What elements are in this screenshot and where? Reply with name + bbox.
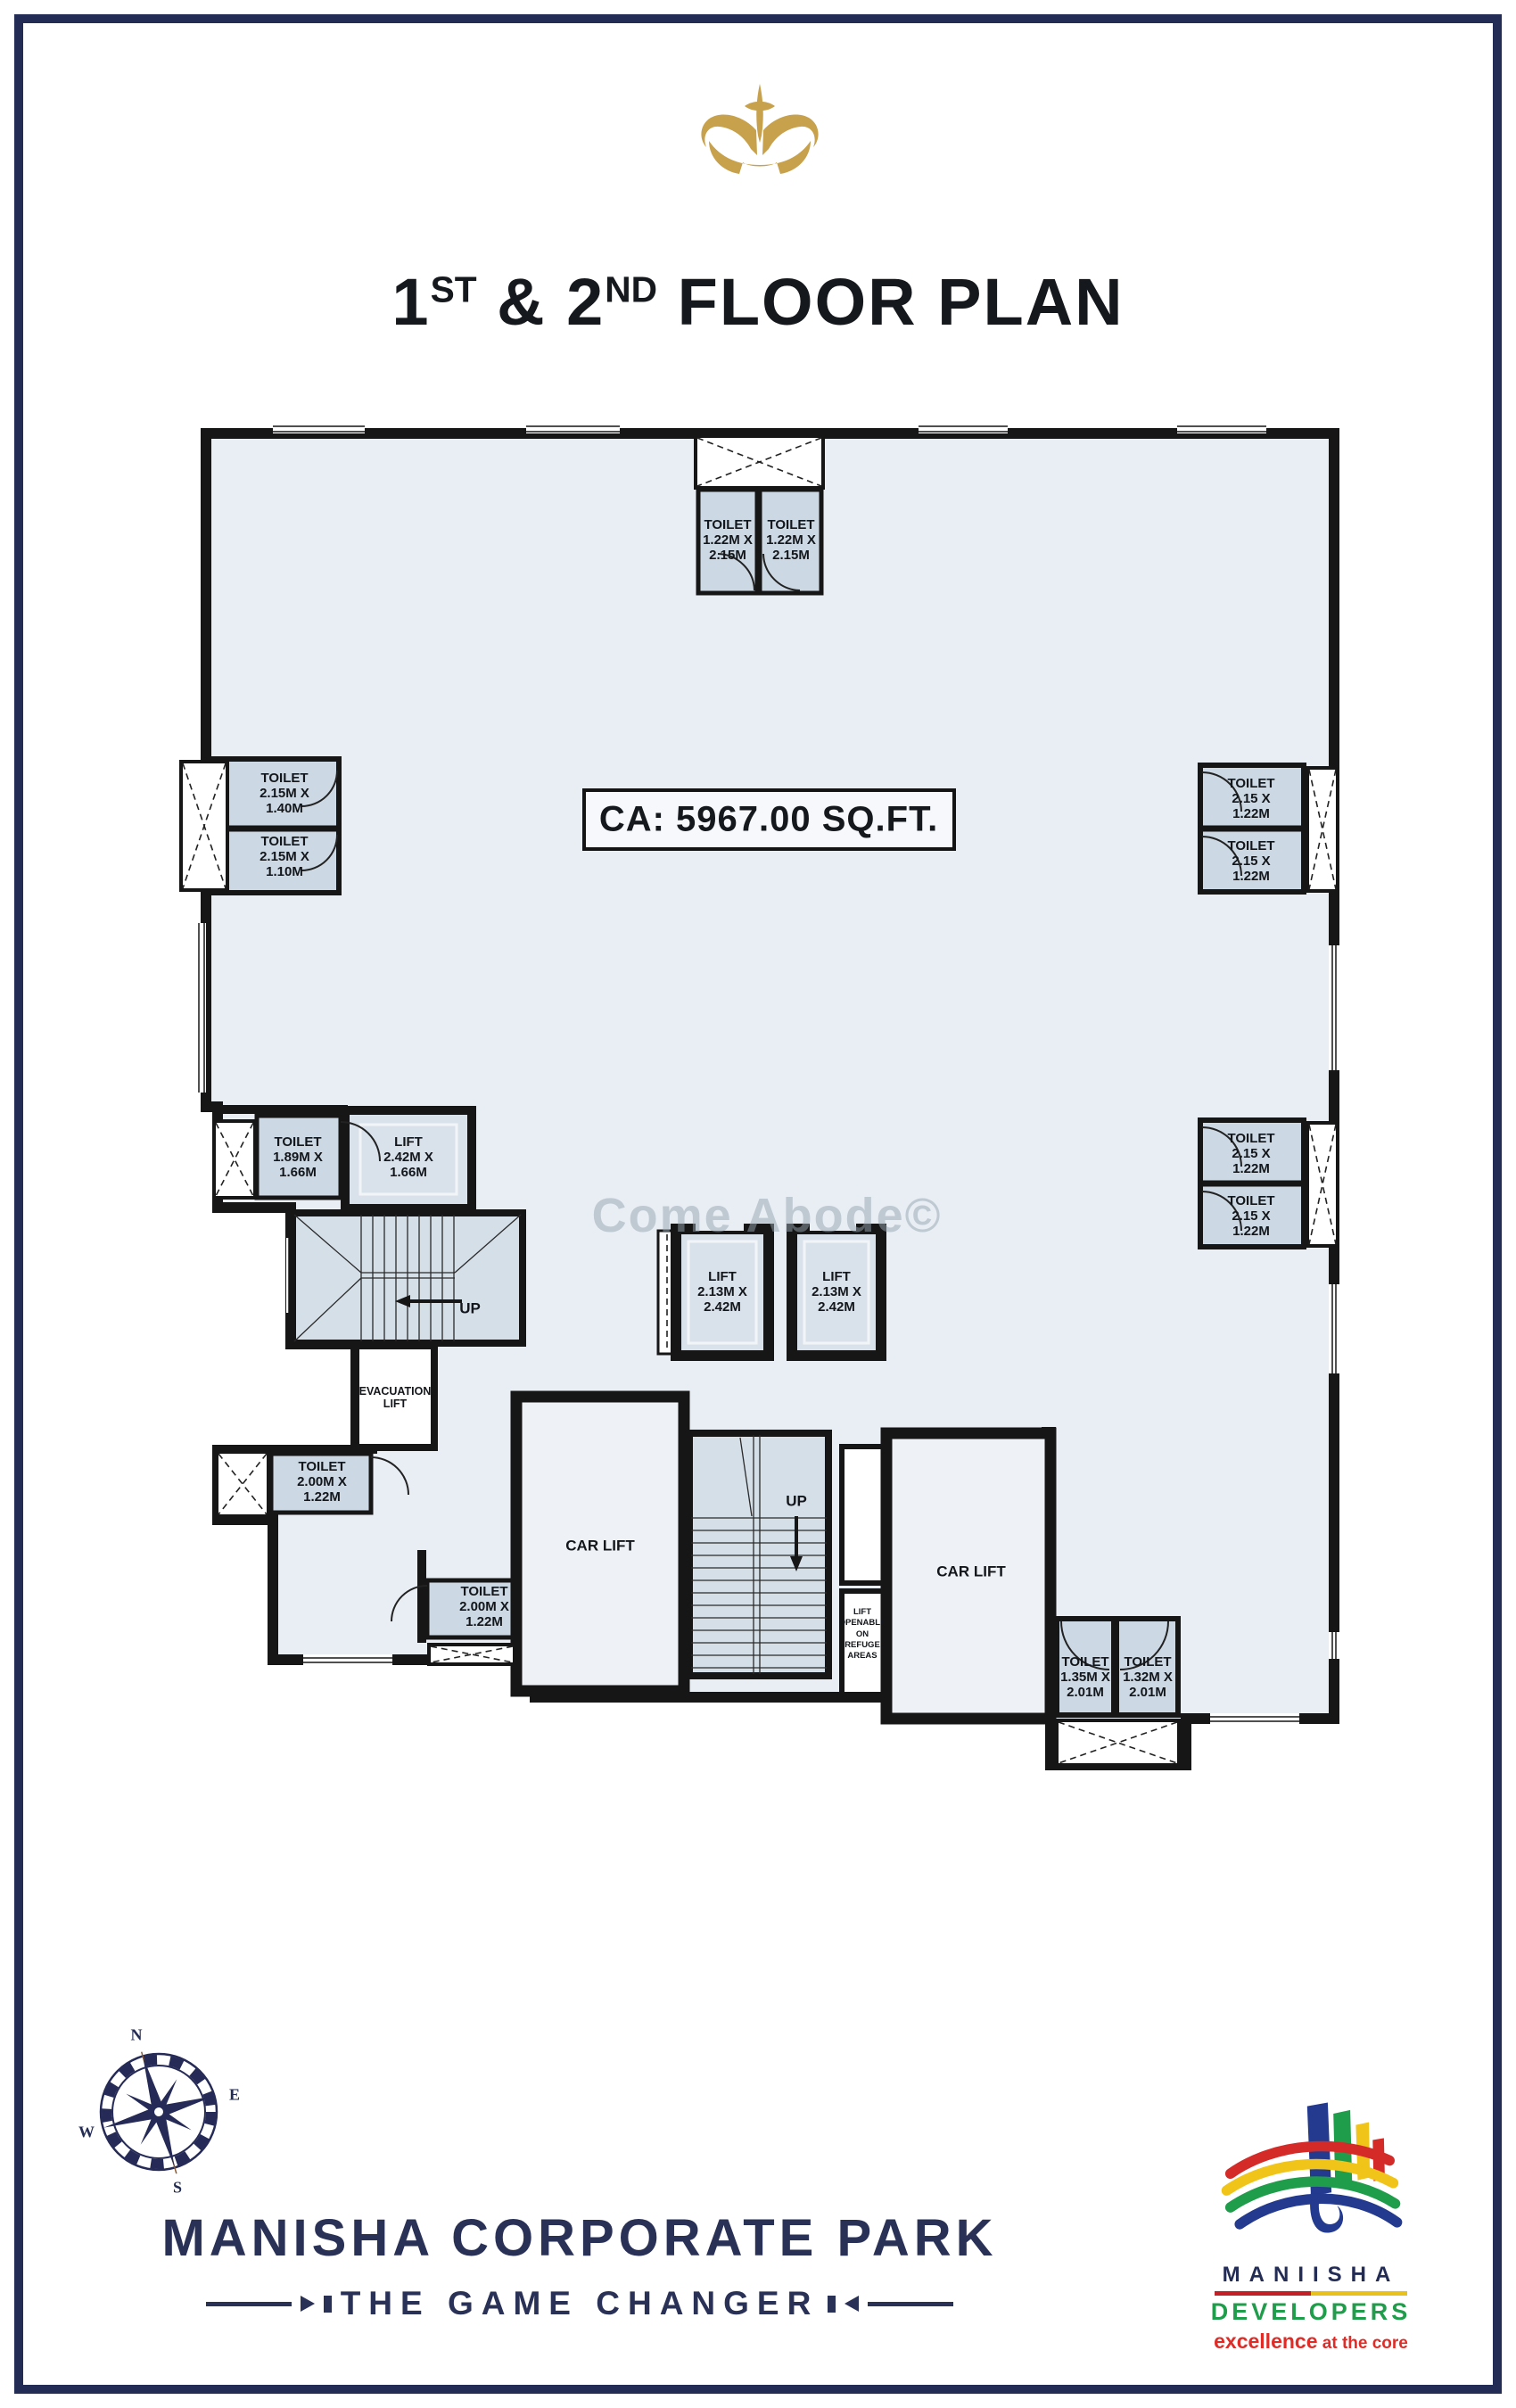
maniisha-developers-logo (1217, 2096, 1405, 2261)
label-toilet-right-top-1: TOILET 2.15 X 1.22M (1227, 777, 1274, 821)
tagline-arrow-left (301, 2296, 315, 2312)
label-toilet-189: TOILET 1.89M X 1.66M (273, 1135, 323, 1180)
staircase-upper (292, 1213, 523, 1343)
tagline-square-right (828, 2296, 836, 2313)
tagline-square-left (324, 2296, 332, 2313)
label-up-lower: UP (786, 1492, 807, 1509)
developer-underline (1215, 2291, 1407, 2296)
label-toilet-200-upper: TOILET 2.00M X 1.22M (297, 1460, 347, 1505)
tagline-dash-right (868, 2302, 953, 2306)
label-toilet-left-upper: TOILET 2.15M X 1.40M (260, 771, 309, 816)
label-car-lift-right: CAR LIFT (936, 1563, 1005, 1579)
label-car-lift-left: CAR LIFT (565, 1537, 634, 1554)
label-toilet-132: TOILET 1.32M X 2.01M (1123, 1655, 1173, 1700)
compass-north-label: N (131, 2026, 143, 2045)
label-evacuation-lift: EVACUATION LIFT (359, 1385, 432, 1410)
staircase-lower (689, 1433, 828, 1676)
compass-west-label: W (78, 2123, 95, 2142)
label-toilet-left-lower: TOILET 2.15M X 1.10M (260, 835, 309, 879)
compass-east-label: E (229, 2086, 240, 2105)
label-lift-center-1: LIFT 2.13M X 2.42M (697, 1270, 747, 1315)
page: 1ST & 2ND FLOOR PLAN (0, 0, 1516, 2408)
developer-category: DEVELOPERS (1186, 2298, 1436, 2326)
label-toilet-135: TOILET 1.35M X 2.01M (1060, 1655, 1110, 1700)
project-name: MANISHA CORPORATE PARK (0, 2208, 1159, 2268)
label-lift-center-2: LIFT 2.13M X 2.42M (812, 1270, 861, 1315)
label-lift-242: LIFT 2.42M X 1.66M (383, 1135, 433, 1180)
label-toilet-right-top-2: TOILET 2.15 X 1.22M (1227, 839, 1274, 884)
developer-slogan: excellence at the core (1186, 2330, 1436, 2354)
developer-block: MANIISHA DEVELOPERS excellence at the co… (1186, 2096, 1436, 2354)
label-toilet-top-right: TOILET 1.22M X 2.15M (766, 518, 816, 563)
label-toilet-200-lower: TOILET 2.00M X 1.22M (459, 1585, 509, 1629)
tagline-text: THE GAME CHANGER (341, 2285, 820, 2322)
compass-rose-icon (93, 2046, 225, 2178)
carpet-area-label: CA: 5967.00 SQ.FT. (599, 800, 938, 840)
label-toilet-top-left: TOILET 1.22M X 2.15M (703, 518, 753, 563)
tagline-row: THE GAME CHANGER (0, 2285, 1159, 2322)
label-up-upper: UP (459, 1299, 481, 1316)
watermark: Come Abode© (592, 1188, 943, 1243)
tagline-dash-left (206, 2302, 292, 2306)
tagline-arrow-right (845, 2296, 859, 2312)
label-toilet-right-mid-2: TOILET 2.15 X 1.22M (1227, 1194, 1274, 1239)
label-toilet-right-mid-1: TOILET 2.15 X 1.22M (1227, 1132, 1274, 1176)
developer-name: MANIISHA (1186, 2263, 1436, 2288)
label-refuge-lift: LIFT OPENABLE ON REFUGE AREAS (839, 1607, 886, 1662)
compass-south-label: S (173, 2179, 182, 2198)
